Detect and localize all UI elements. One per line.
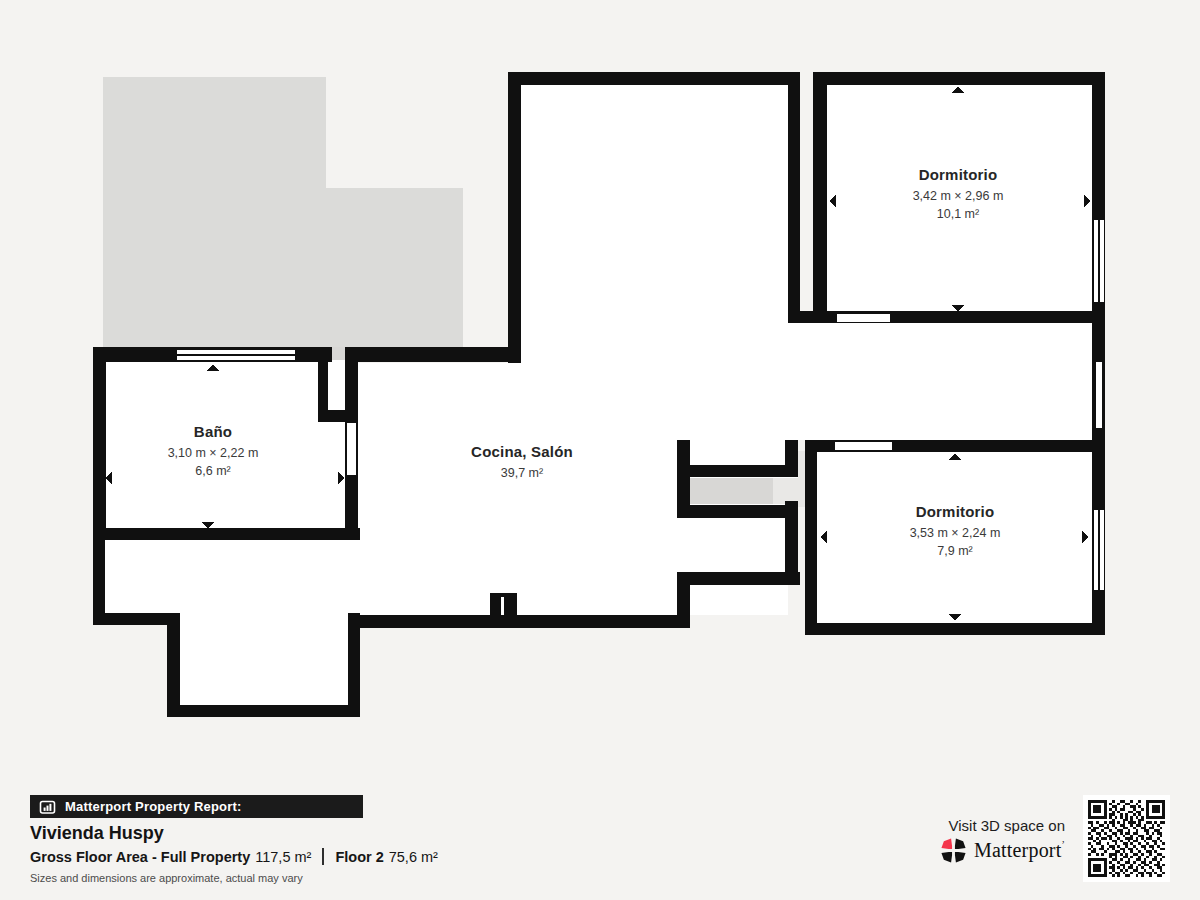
room-dimensions: 3,42 m × 2,96 m bbox=[913, 189, 1004, 204]
floor-value: 75,6 m² bbox=[389, 849, 438, 865]
trademark-tick: ’ bbox=[1061, 839, 1065, 850]
report-banner-label: Matterport Property Report: bbox=[65, 799, 242, 814]
room-label-dormitorio-1: Dormitorio 3,42 m × 2,96 m 10,1 m² bbox=[913, 166, 1004, 222]
room-area: 10,1 m² bbox=[913, 207, 1004, 222]
room-name: Baño bbox=[168, 423, 259, 441]
matterport-wordmark: Matterport’ bbox=[974, 839, 1065, 862]
room-dimensions: 3,10 m × 2,22 m bbox=[168, 446, 259, 461]
qr-code bbox=[1083, 795, 1170, 882]
logo-petal-accent bbox=[941, 838, 952, 849]
disclaimer-text: Sizes and dimensions are approximate, ac… bbox=[30, 872, 303, 884]
room-area: 7,9 m² bbox=[910, 544, 1001, 559]
gross-floor-area-value: 117,5 m² bbox=[255, 849, 311, 865]
floorplan bbox=[0, 0, 1200, 780]
matterport-floorplan-report: { "plan": { "rooms": [ {"id": "bano", "n… bbox=[0, 0, 1200, 900]
matterport-brand: Matterport’ bbox=[880, 837, 1065, 864]
matterport-logo-icon bbox=[940, 837, 967, 864]
report-banner: Matterport Property Report: bbox=[30, 795, 363, 818]
room-label-dormitorio-2: Dormitorio 3,53 m × 2,24 m 7,9 m² bbox=[910, 503, 1001, 559]
floor-area-line: Gross Floor Area - Full Property 117,5 m… bbox=[30, 848, 438, 865]
divider bbox=[322, 848, 324, 865]
room-dimensions: 3,53 m × 2,24 m bbox=[910, 526, 1001, 541]
gross-floor-area-label: Gross Floor Area - Full Property bbox=[30, 849, 250, 865]
room-label-cocina-salon: Cocina, Salón 39,7 m² bbox=[471, 443, 573, 481]
report-icon bbox=[39, 799, 56, 815]
room-area: 39,7 m² bbox=[471, 466, 573, 481]
room-area: 6,6 m² bbox=[168, 464, 259, 479]
visit-3d-space-text: Visit 3D space on bbox=[880, 817, 1065, 834]
floor-label: Floor 2 bbox=[335, 849, 383, 865]
room-name: Dormitorio bbox=[913, 166, 1004, 184]
room-label-bano: Baño 3,10 m × 2,22 m 6,6 m² bbox=[168, 423, 259, 479]
property-name: Vivienda Huspy bbox=[30, 823, 164, 844]
room-name: Cocina, Salón bbox=[471, 443, 573, 461]
room-name: Dormitorio bbox=[910, 503, 1001, 521]
